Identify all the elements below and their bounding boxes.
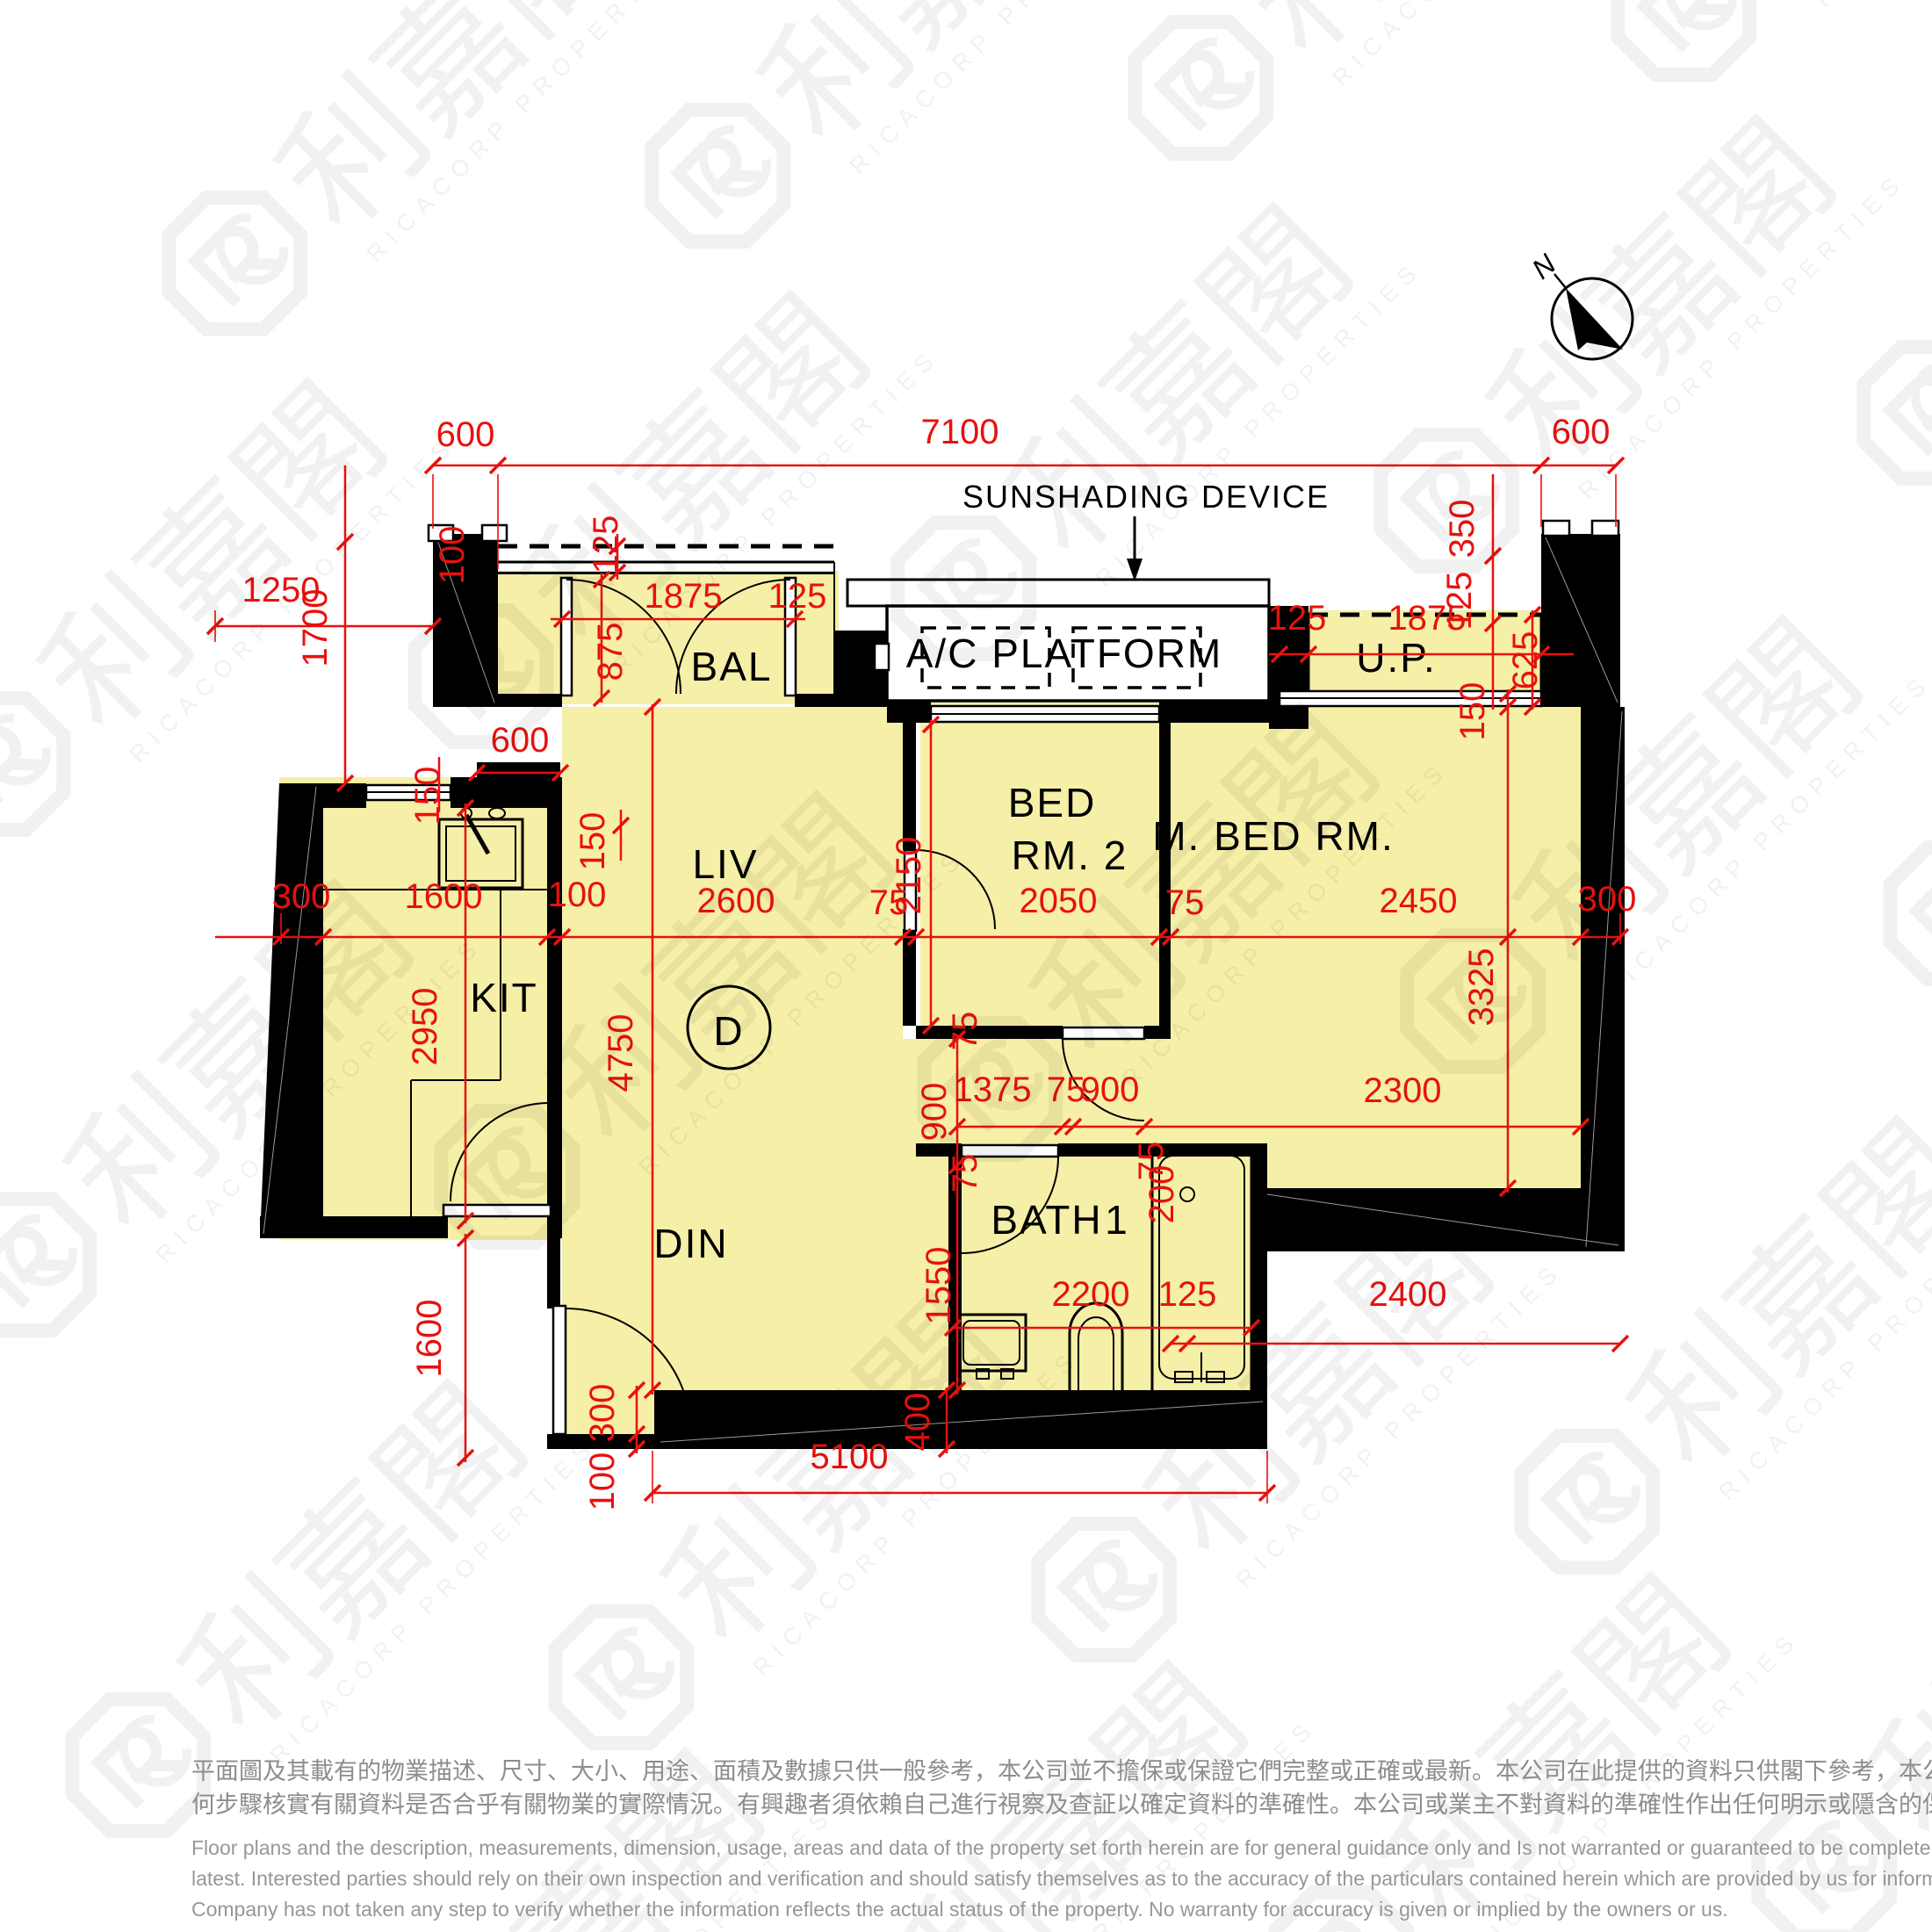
disclaimer-en-line2: latest. Interested parties should rely o…: [191, 1864, 1772, 1894]
dimension-label: 150: [573, 812, 612, 871]
dimension-label: 125: [768, 577, 827, 616]
dimension-label: 100: [548, 876, 607, 914]
room-label-bath-number: 1: [1105, 1197, 1129, 1243]
dimension-label: 300: [583, 1384, 622, 1443]
room-label-kitchen: KIT: [470, 975, 538, 1020]
floor-plan-page: 利嘉閣 RICACORP PROPERTIES: [0, 0, 1932, 1932]
disclaimer-en-line3: Company has not taken any step to verify…: [191, 1894, 1772, 1925]
dimension-label: 7100: [921, 413, 999, 451]
floor-plan-drawing: 利嘉閣 RICACORP PROPERTIES: [0, 0, 1932, 1932]
dimension-label: 125: [1440, 572, 1479, 631]
room-label-dining: DIN: [653, 1221, 728, 1266]
entrance-door-leaf: [553, 1306, 566, 1434]
disclaimer-en-line1: Floor plans and the description, measure…: [191, 1833, 1772, 1864]
disclaimer: 平面圖及其載有的物業描述、尺寸、大小、用途、面積及數據只供一般參考，本公司並不擔…: [191, 1755, 1772, 1925]
dimension-label: 150: [408, 767, 447, 825]
dimension-label: 2300: [1364, 1071, 1442, 1110]
room-label-balcony: BAL: [691, 644, 773, 689]
dimension-label: 150: [1453, 682, 1492, 741]
room-label-utility-platform: U.P.: [1356, 635, 1437, 681]
dimension-label: 125: [1268, 599, 1327, 638]
dimension-label: 200: [1143, 1165, 1181, 1224]
compass-north-label: N: [1526, 248, 1563, 285]
dimension-label: 1600: [405, 877, 483, 916]
room-label-bedroom2: BED: [1008, 780, 1097, 825]
dimension-label: 2200: [1052, 1275, 1130, 1314]
dimension-label: 100: [433, 526, 472, 585]
dimension-label: 2450: [1380, 882, 1458, 920]
disclaimer-zh-line1: 平面圖及其載有的物業描述、尺寸、大小、用途、面積及數據只供一般參考，本公司並不擔…: [191, 1755, 1772, 1788]
dimension-label: 625: [1506, 631, 1545, 690]
dimension-label: 125: [1158, 1275, 1217, 1314]
disclaimer-zh-line2: 何步驟核實有關資料是否合乎有關物業的實際情況。有興趣者須依賴自己進行視察及查証以…: [191, 1788, 1772, 1821]
room-label-bath: BATH: [991, 1197, 1102, 1243]
